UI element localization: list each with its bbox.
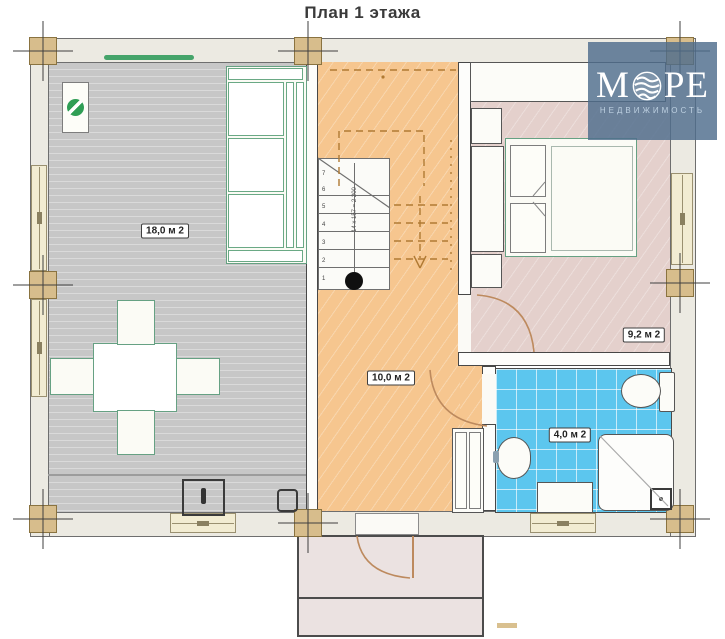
porch [297,535,484,637]
hall-cabinet [452,428,484,513]
cabinet-door [455,432,467,509]
bathroom-area-label: 4,0 м 2 [549,428,591,443]
brand-watermark: М РЕ НЕДВИЖИМОСТЬ [588,42,717,140]
post-top-left [29,37,57,65]
sofa-backrest [296,82,304,248]
bedroom-area-label: 9,2 м 2 [623,328,665,343]
window-right-bedroom [671,173,693,265]
stair-dimension-note: 14 x 157 = 2 200 [352,187,358,232]
post-left-middle [29,271,57,299]
sofa [226,66,307,264]
mattress [551,146,633,251]
pillow [510,145,546,197]
nightstand-bottom [471,254,502,288]
stair-step-number: 1 [322,276,325,282]
floor-plan-canvas: План 1 этажа [0,0,725,639]
porch-step-line [299,597,482,599]
post-top-middle [294,37,322,65]
chair-top [117,300,155,345]
window-bottom-living [170,513,236,533]
stair-step-number: 5 [322,204,325,210]
plant-icon [67,99,84,116]
sofa-backrest [286,82,294,248]
hall-area-label: 10,0 м 2 [367,371,415,386]
shelf [104,55,194,60]
page-title: План 1 этажа [0,3,725,23]
sofa-armrest-top [228,68,303,80]
sink [497,437,531,479]
globe-icon [631,70,663,102]
toilet-bowl [621,374,661,408]
post-bottom-left [29,505,57,533]
stair-newel-post [345,272,363,290]
dining-table [93,343,177,412]
dimension-mark [497,623,517,628]
chair-bottom [117,410,155,455]
window-left-lower [31,299,47,397]
window-left-upper [31,165,47,271]
brand-letter-m: М [596,67,630,104]
stair-step-number: 4 [322,222,325,228]
brand-wordmark: М РЕ [596,67,709,104]
bed [505,138,637,257]
sofa-cushion [228,138,284,192]
sofa-cushion [228,194,284,248]
chair-left [50,358,94,395]
drain-dot [659,497,663,501]
bedroom-door-opening [458,295,471,352]
wall-hall-bath-lower [482,424,496,511]
stair-step-number: 6 [322,187,325,193]
bathroom-door-opening [482,374,496,426]
toilet-tank [659,372,675,412]
sofa-armrest-bottom [228,250,303,262]
stair-step-number: 3 [322,240,325,246]
cabinet-door [469,432,481,509]
sink-tap [493,451,499,463]
window-bottom-bathroom [530,513,596,533]
stove-icon [201,488,206,504]
wall-bedroom-bottom [458,352,670,366]
living-area-label: 18,0 м 2 [141,224,189,239]
hatch-box [277,489,298,512]
stair-step-number: 2 [322,258,325,264]
brand-subtitle: НЕДВИЖИМОСТЬ [600,106,705,115]
wall-living-hall [306,62,318,511]
stove [182,479,225,516]
pillow [510,203,546,253]
bedside-bench [471,146,504,252]
stair-step-number: 7 [322,171,325,177]
nightstand-top [471,108,502,144]
shower-drain [650,488,672,510]
washing-machine [537,482,593,513]
post-right-middle [666,269,694,297]
sofa-cushion [228,82,284,136]
brand-letters-re: РЕ [664,67,709,104]
chair-right [176,358,220,395]
entrance-door-opening [355,513,419,535]
post-bottom-middle [294,509,322,537]
